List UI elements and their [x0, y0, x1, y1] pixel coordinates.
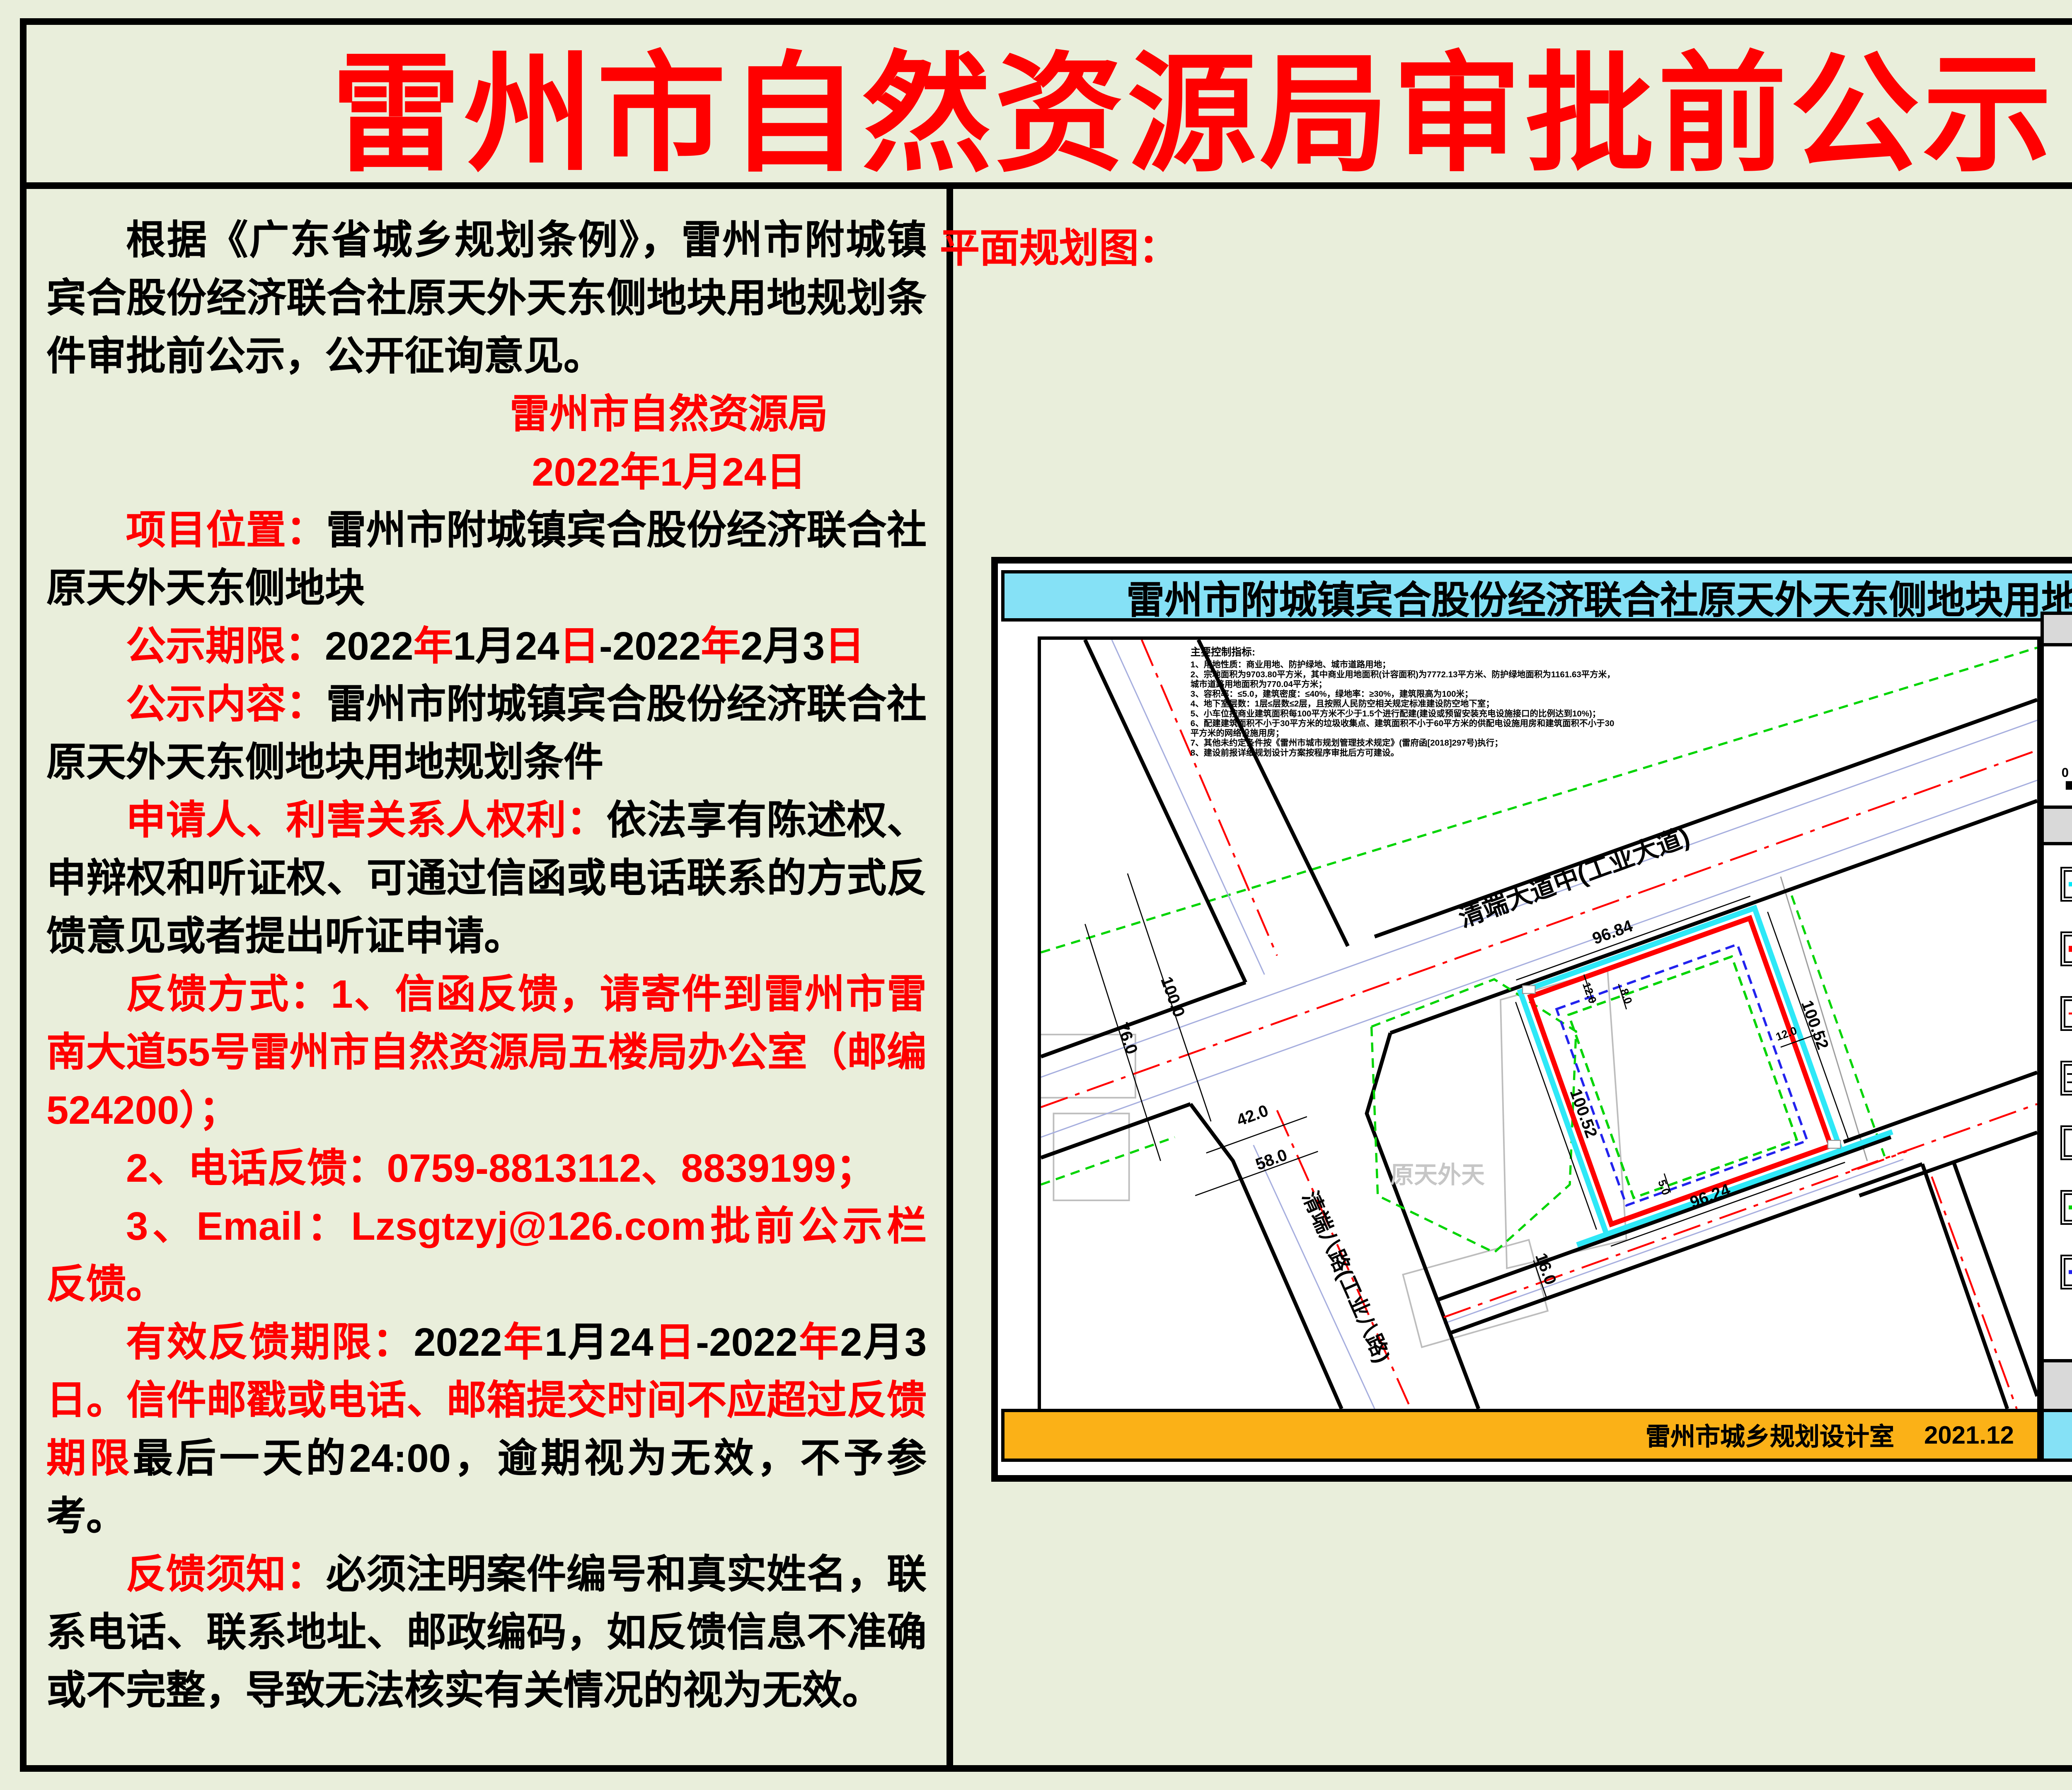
plan-label: 平面规划图： — [940, 215, 1179, 273]
indicator-line: 城市道路用地面积为770.04平方米； — [1191, 679, 1327, 689]
legend-symbol-road — [2064, 1064, 2072, 1092]
legend-item: 控制点坐标 — [2044, 1122, 2072, 1163]
plan-column: 平面规划图： 雷州市附城镇宾合股份经济联合社原天外天东侧地块用地规划 — [920, 189, 2072, 1765]
notice-paragraph: 申请人、利害关系人权利：依法享有陈述权、申辩权和听证权、可通过信函或电话联系的方… — [46, 792, 927, 966]
dim-top: 96.84 — [1590, 917, 1635, 948]
notice-paragraph: 3、Email：Lzsgtzyj@126.com批前公示栏反馈。 — [46, 1198, 927, 1314]
indicator-line: 1、用地性质：商业用地、防护绿地、城市道路用地； — [1191, 660, 1391, 670]
indicator-line: 5、小车位按商业建筑面积每100平方米不少于1.5个进行配建(建设或预留安装充电… — [1191, 709, 1601, 718]
notice-text-column: 根据《广东省城乡规划条例》，雷州市附城镇宾合股份经济联合社原天外天东侧地块用地规… — [27, 189, 953, 1765]
page-title: 雷州市自然资源局审批前公示 — [332, 11, 2055, 196]
windrose-svg: N — [2044, 646, 2072, 808]
notice-paragraph: 公示内容：雷州市附城镇宾合股份经济联合社原天外天东侧地块用地规划条件 — [46, 676, 927, 792]
title-band: 雷州市自然资源局审批前公示 — [27, 25, 2072, 189]
indicator-line: 6、配建建筑面积不小于30平方米的垃圾收集点、建筑面积不小于60平方米的供配电设… — [1191, 718, 1615, 728]
dim-road-width-1: 76.0 — [1113, 1020, 1141, 1057]
indicator-line: 2、宗地面积为9703.80平方米，其中商业用地面积(计容面积)为7772.13… — [1191, 669, 1615, 679]
indicator-line: 3、容积率：≤5.0，建筑密度：≤40%，绿地率：≥30%，建筑限高为100米； — [1191, 689, 1473, 699]
intensity-header: 开发强度控制图 — [2041, 1359, 2072, 1412]
notice-paragraph: 根据《广东省城乡规划条例》，雷州市附城镇宾合股份经济联合社原天外天东侧地块用地规… — [46, 212, 927, 386]
legend-item: 用地规划红线 — [2044, 928, 2072, 970]
plan-map: 雷州市附城镇宾合股份经济联合社原天外天东侧地块用地规划 — [991, 557, 2072, 1482]
indicators-block: 主要控制指标: 1、用地性质：商业用地、防护绿地、城市道路用地；2、宗地面积为9… — [1191, 646, 1615, 757]
dim-setback-top-2: 8.0 — [1618, 987, 1635, 1006]
map-date: 2021.12 — [1924, 1421, 2014, 1449]
indicator-line: 7、其他未约定条件按《雷州市城市规划管理技术规定》(雷府函[2018]297号)… — [1191, 738, 1503, 748]
indicators-title: 主要控制指标: — [1191, 646, 1255, 658]
legend-symbol-solid — [2064, 870, 2072, 898]
windrose-panel: N — [2041, 643, 2072, 809]
intensity-cell — [2041, 1409, 2072, 1462]
notice-paragraph: 公示期限：2022年1月24日-2022年2月3日 — [46, 618, 927, 676]
windrose-header: 风玫瑰图 — [2041, 612, 2072, 646]
scale-bar: 0 40 20 80M — [2062, 765, 2072, 806]
indicator-line: 4、地下室层数：1层≤层数≤2层，且按照人民防空相关规定标准建设防空地下室； — [1191, 699, 1494, 709]
page: 雷州市自然资源局审批前公示 根据《广东省城乡规划条例》，雷州市附城镇宾合股份经济… — [0, 0, 2072, 1790]
legend-symbol-empty — [2064, 1129, 2072, 1157]
map-footer-bar: 雷州市城乡规划设计室 2021.12 — [1001, 1409, 2041, 1462]
legend-symbol-thick — [2064, 935, 2072, 963]
dim-bottom: 96.24 — [1687, 1180, 1733, 1212]
map-drawing: 原天外天 — [1038, 636, 2041, 1412]
notice-paragraph: 反馈须知：必须注明案件编号和真实姓名，联系电话、联系地址、邮政编码，如反馈信息不… — [46, 1546, 927, 1720]
indicator-line: 平方米的网络设施用房； — [1191, 728, 1284, 738]
legend-item: 地上建筑控制线 — [2044, 1187, 2072, 1228]
legend-symbol-dashed — [2064, 1193, 2072, 1222]
dim-branch-width-1: 42.0 — [1234, 1101, 1271, 1130]
legend-symbol-dashed — [2064, 1258, 2072, 1286]
legend-symbol-dashdot — [2064, 999, 2072, 1028]
dim-branch-width-2: 58.0 — [1253, 1146, 1290, 1174]
notice-paragraph: 2022年1月24日 — [46, 444, 927, 502]
legend-item: 道路中心线 — [2044, 993, 2072, 1034]
notice-paragraph: 有效反馈期限：2022年1月24日-2022年2月3日。信件邮戳或电话、邮箱提交… — [46, 1314, 927, 1546]
notice-paragraph: 项目位置：雷州市附城镇宾合股份经济联合社原天外天东侧地块 — [46, 502, 927, 618]
notice-paragraph: 雷州市自然资源局 — [46, 386, 927, 444]
legend-item: 道路红线 — [2044, 1057, 2072, 1099]
map-title: 雷州市附城镇宾合股份经济联合社原天外天东侧地块用地规划 — [1001, 570, 2072, 622]
legend-item: 地下建筑控制线 — [2044, 1251, 2072, 1293]
notice-paragraph: 反馈方式：1、信函反馈，请寄件到雷州市雷南大道55号雷州市自然资源局五楼局办公室… — [46, 966, 927, 1140]
dim-setback-top-1: 12.0 — [1580, 981, 1599, 1005]
map-author: 雷州市城乡规划设计室 — [1646, 1418, 1894, 1453]
indicator-line: 8、建设前报详细规划设计方案按程序审批后方可建设。 — [1191, 747, 1399, 757]
scale-0: 0 — [2062, 765, 2069, 780]
legend-panel: 宗地红线用地规划红线道路中心线道路红线控制点坐标地上建筑控制线地下建筑控制线 — [2041, 842, 2072, 1362]
notice-paragraph: 2、电话反馈：0759-8813112、8839199； — [46, 1140, 927, 1198]
legend-item: 宗地红线 — [2044, 864, 2072, 905]
site-plan-svg: 原天外天 — [1041, 640, 2037, 1409]
old-site-label: 原天外天 — [1390, 1162, 1485, 1188]
notice-frame: 雷州市自然资源局审批前公示 根据《广东省城乡规划条例》，雷州市附城镇宾合股份经济… — [20, 18, 2072, 1772]
legend-header: 图 例 — [2041, 805, 2072, 845]
